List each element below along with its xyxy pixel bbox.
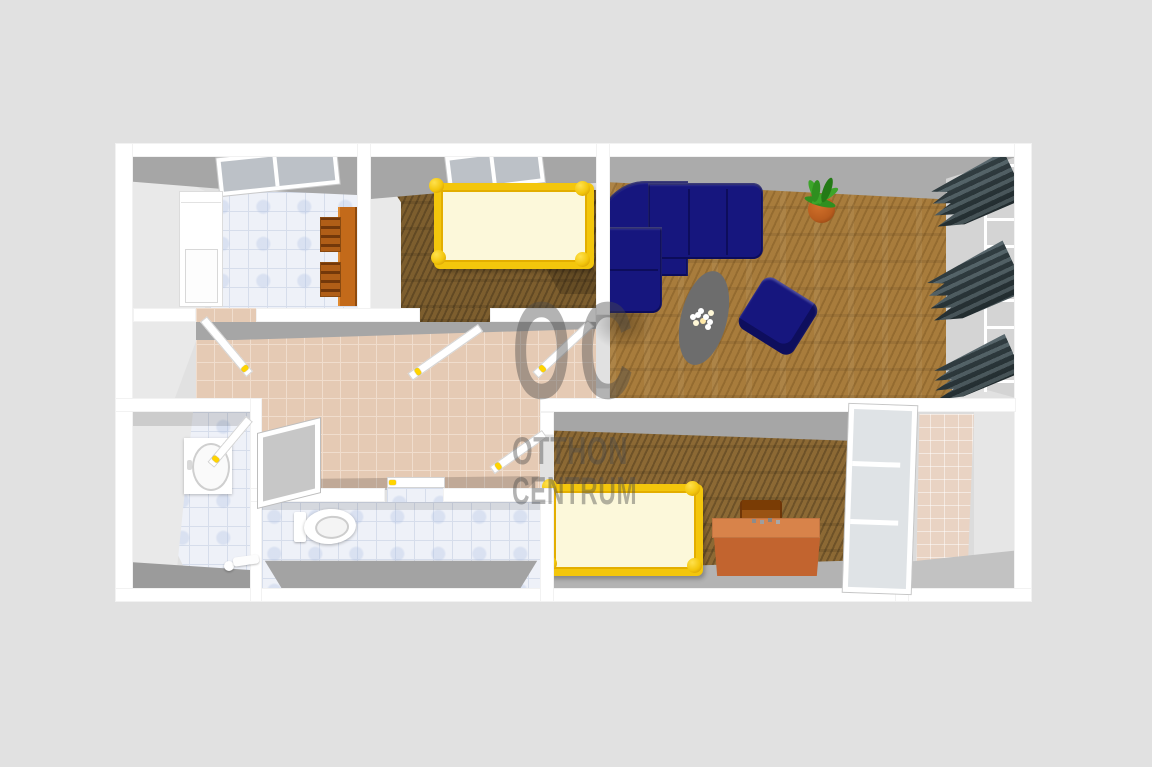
sofa-seam	[688, 189, 690, 255]
bedroom1-window-mullion	[489, 155, 497, 184]
glass-door-rail	[852, 461, 900, 468]
bed-post	[431, 250, 446, 265]
hallway-west-wall-face	[133, 322, 203, 398]
outer-wall-top	[115, 143, 1032, 157]
corner-sofa-top	[648, 183, 763, 259]
toilet-seat-ring	[314, 515, 350, 540]
kitchen-chair	[320, 217, 341, 252]
bathroom-north-shadow	[133, 412, 250, 426]
bed-post	[685, 481, 700, 496]
refrigerator-top-line	[181, 202, 221, 203]
bedroom1-doorway-gap	[420, 308, 490, 322]
potted-plant	[798, 176, 846, 232]
floor-plan-render: OC OTTHON CENTRUM	[0, 0, 1152, 767]
door-handle	[211, 455, 220, 463]
kitchen-window-mullion	[272, 156, 279, 186]
open-door-flat	[387, 477, 445, 488]
watermark-line1: OTTHON	[512, 432, 628, 471]
bed-post	[687, 558, 702, 573]
hall-north-wall-seg1	[133, 308, 196, 322]
desk-items	[752, 519, 756, 523]
desk-top	[712, 518, 820, 538]
bed-post	[429, 178, 444, 193]
washbasin-tap	[187, 460, 192, 470]
bed-post	[575, 252, 590, 267]
refrigerator-door	[185, 249, 218, 303]
wc-north-shadow	[262, 502, 540, 510]
flower-bouquet	[695, 312, 701, 318]
wall-kitchen-bedroom1	[357, 143, 371, 322]
door-handle	[389, 480, 396, 485]
door-handle	[494, 462, 502, 471]
desk-front	[714, 538, 820, 576]
hall-north-wall-seg2	[256, 308, 420, 322]
door-handle	[414, 367, 422, 376]
sofa-seam	[606, 269, 658, 271]
sofa-seam	[726, 189, 728, 255]
bedroom2-glass-door	[843, 404, 918, 594]
desk-chair-back	[742, 500, 780, 510]
bed-post	[575, 181, 590, 196]
outer-wall-left	[115, 143, 133, 602]
wall-bathroom-north	[115, 398, 262, 412]
watermark-logo: OC	[512, 282, 641, 420]
door-handle	[241, 364, 250, 372]
watermark-line2: CENTRUM	[512, 472, 637, 511]
wc-wall-window	[258, 418, 320, 507]
outer-wall-right	[1014, 143, 1032, 602]
bedroom1-bed	[434, 183, 594, 269]
glass-door-rail	[850, 519, 898, 526]
wc-doorway-gap	[387, 488, 443, 502]
kitchen-chair	[320, 262, 341, 297]
refrigerator	[179, 191, 223, 307]
